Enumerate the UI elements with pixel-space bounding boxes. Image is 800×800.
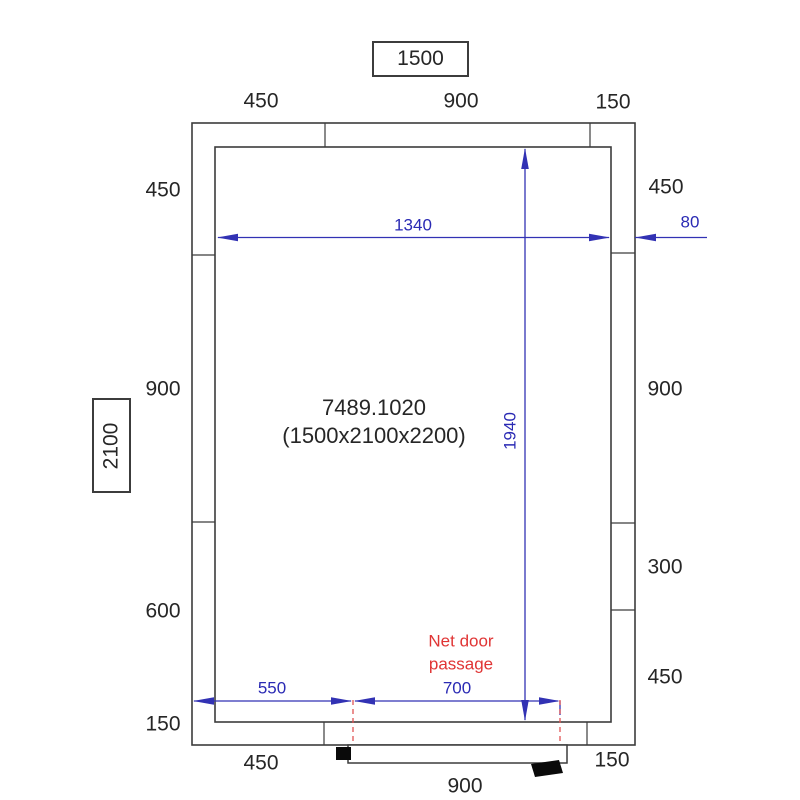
dim-arrow-up	[521, 148, 529, 169]
dim-arrow-right	[331, 697, 352, 705]
dim-left-450: 450	[145, 178, 180, 201]
dim-top-900: 900	[443, 89, 478, 112]
product-annotation: 7489.1020 (1500x2100x2200)	[282, 394, 465, 450]
dim-left-150: 150	[145, 712, 180, 735]
dim-left-900: 900	[145, 377, 180, 400]
dim-door-passage-label: 700	[443, 680, 471, 699]
overall-width-label: 1500	[397, 47, 444, 71]
dim-wall-thickness-label: 80	[681, 214, 700, 233]
dim-arrow-down	[521, 700, 529, 721]
overall-depth-label: 2100	[100, 422, 124, 469]
dim-arrow-left	[193, 697, 214, 705]
overall-width-box: 1500	[372, 41, 469, 77]
dim-arrow-left	[635, 234, 656, 242]
net-door-passage-note: Net door passage	[409, 630, 513, 677]
product-code: 7489.1020	[282, 394, 465, 422]
dim-inner-height-label: 1940	[502, 412, 521, 450]
dim-right-450b: 450	[647, 665, 682, 688]
dim-right-300: 300	[647, 555, 682, 578]
technical-drawing: 1500 2100 450 900 150 450 900 600 150 45…	[0, 0, 800, 800]
dim-right-900: 900	[647, 377, 682, 400]
dim-bottom-900: 900	[447, 774, 482, 797]
dim-arrow-right	[589, 234, 610, 242]
dim-right-450: 450	[648, 175, 683, 198]
dimension-wall-thickness	[635, 234, 707, 242]
door-leaf	[348, 745, 567, 763]
dimension-door-passage	[354, 697, 560, 715]
dim-left-600: 600	[145, 599, 180, 622]
dim-door-offset-label: 550	[258, 680, 286, 699]
overall-depth-box: 2100	[92, 398, 131, 493]
door	[336, 745, 567, 777]
dim-arrow-left	[354, 697, 375, 705]
dim-inner-width-label: 1340	[394, 217, 432, 236]
product-size: (1500x2100x2200)	[282, 422, 465, 450]
dim-top-450: 450	[243, 89, 278, 112]
dim-top-150: 150	[595, 90, 630, 113]
dim-arrow-left	[217, 234, 238, 242]
dim-bottom-150: 150	[594, 748, 629, 771]
dim-bottom-450: 450	[243, 751, 278, 774]
dim-arrow-right	[539, 697, 560, 705]
dimension-inner-height	[521, 148, 529, 721]
door-hinge-icon	[336, 747, 351, 760]
